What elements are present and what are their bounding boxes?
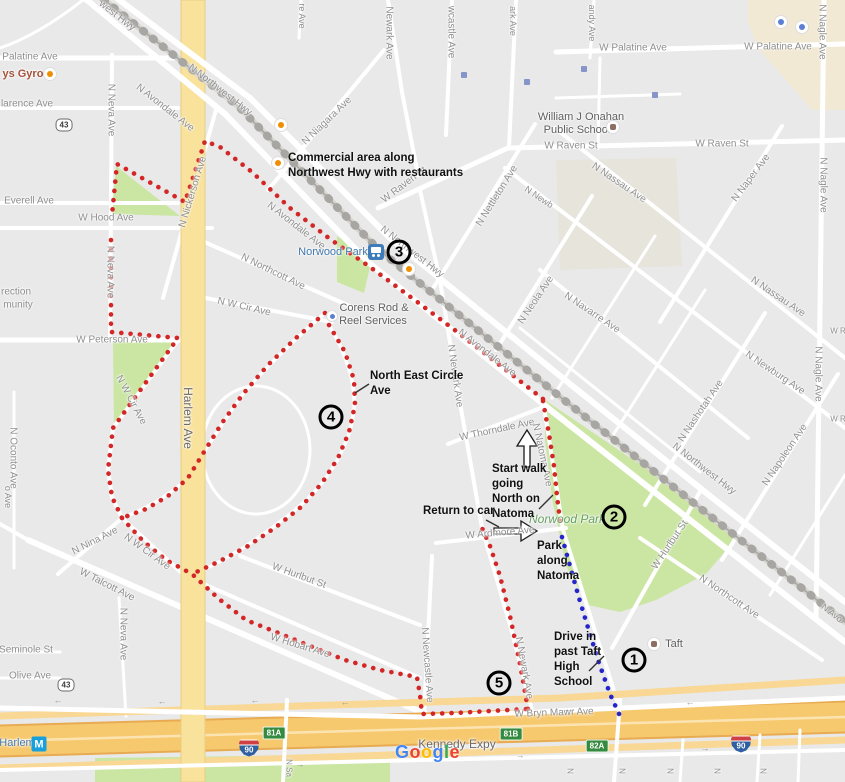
basemap-graphics [0,0,845,782]
google-logo-letter: g [433,742,445,762]
google-watermark: Google [395,742,460,763]
harlem-ave-road [181,0,205,782]
google-logo-letter: G [395,742,410,762]
google-logo-letter: o [410,742,422,762]
google-logo-letter: e [450,742,461,762]
google-logo-letter: o [421,742,433,762]
map-canvas[interactable]: west HwyPalatine Avelarence AveEverell A… [0,0,845,782]
